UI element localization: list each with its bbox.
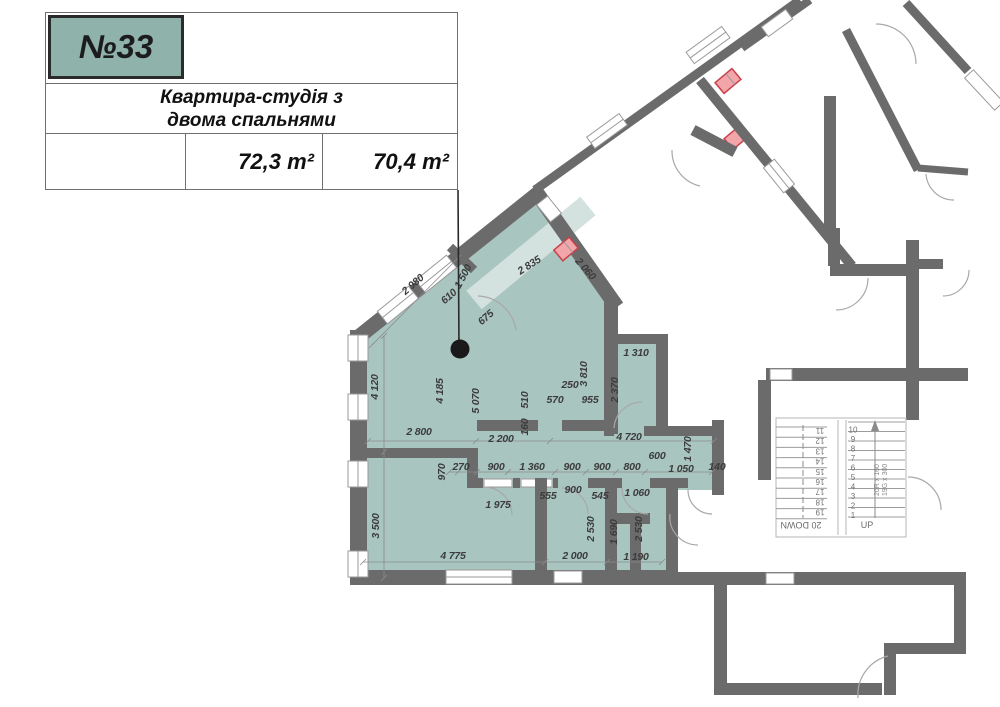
dimension-label: 2 800 <box>405 426 432 438</box>
vent-icon <box>715 69 741 94</box>
dimension-label: 1 470 <box>682 436 694 462</box>
dimension-label: 1 310 <box>623 347 649 359</box>
apartment-title-line2: двома спальнями <box>167 109 336 132</box>
vestibule <box>678 490 712 570</box>
dimension-label: 160 <box>519 418 531 435</box>
area-cell-empty <box>46 134 186 189</box>
dimension-label: 2 000 <box>561 550 588 562</box>
dimension-label: 800 <box>624 461 641 473</box>
stair-step-number: 9 <box>851 435 856 444</box>
dimension-label: 2 200 <box>487 433 514 445</box>
stair-up-label: UP <box>861 520 874 530</box>
stair-step-number: 7 <box>851 454 856 463</box>
dimension-label: 140 <box>709 461 726 473</box>
dimension-label: 600 <box>649 450 666 462</box>
apartment-number: №33 <box>79 28 154 66</box>
dimension-label: 510 <box>519 391 531 408</box>
stair-step-number: 6 <box>851 464 856 473</box>
area-cell-reduced: 70,4 m² <box>323 134 457 189</box>
dimension-label: 555 <box>540 490 557 502</box>
stair-step-number: 11 <box>815 426 824 435</box>
dimension-label: 970 <box>436 463 448 480</box>
apartment-title-line1: Квартира-студія з <box>160 86 343 109</box>
dimension-label: 900 <box>564 461 581 473</box>
dimension-label: 2 530 <box>633 516 645 543</box>
area-cell-total: 72,3 m² <box>186 134 323 189</box>
apartment-title: Квартира-студія з двома спальнями <box>46 84 457 134</box>
stairwell: 12345678910111213141516171819 UP 20 DOWN… <box>776 418 906 537</box>
dimension-label: 1 690 <box>608 519 620 545</box>
stair-step-number: 10 <box>849 426 858 435</box>
stair-step-number: 4 <box>851 483 856 492</box>
dimension-label: 900 <box>594 461 611 473</box>
stair-step-number: 13 <box>815 446 824 455</box>
dimension-label: 5 070 <box>470 388 482 414</box>
stair-step-number: 15 <box>815 467 824 476</box>
stair-step-number: 14 <box>815 457 824 466</box>
stair-step-number: 1 <box>851 511 856 520</box>
dimension-label: 1 360 <box>519 461 545 473</box>
stair-down-label: 20 DOWN <box>780 520 821 530</box>
stair-step-number: 5 <box>851 473 856 482</box>
stair-step-number: 3 <box>851 492 856 501</box>
dimension-label: 545 <box>592 490 609 502</box>
stair-step-number: 18 <box>815 497 824 506</box>
dimension-label: 2 530 <box>585 516 597 543</box>
reduced-area-value: 70,4 m² <box>373 149 449 175</box>
dimension-label: 900 <box>488 461 505 473</box>
dimension-label: 1 060 <box>624 487 650 499</box>
dimension-label: 4 775 <box>439 550 466 562</box>
dimension-label: 900 <box>565 484 582 496</box>
stair-step-number: 12 <box>815 436 824 445</box>
title-block-areas: 72,3 m² 70,4 m² <box>46 134 457 189</box>
stair-step-number: 16 <box>815 477 824 486</box>
stair-step-number: 19 <box>815 508 824 517</box>
dimension-label: 1 190 <box>623 551 649 563</box>
callout-dot <box>451 340 470 359</box>
stair-step-number: 8 <box>851 445 856 454</box>
floor-plan-page: 12345678910111213141516171819 UP 20 DOWN… <box>0 0 1000 707</box>
dimension-label: 4 185 <box>434 378 446 405</box>
dimension-label: 1 975 <box>485 499 511 511</box>
stair-going-note: 19G x 300 <box>882 464 889 496</box>
dimension-label: 4 720 <box>615 431 642 443</box>
stair-step-number: 17 <box>815 487 824 496</box>
title-block-row-number: №33 <box>46 13 457 84</box>
dimension-label: 570 <box>547 394 564 406</box>
dimension-label: 270 <box>452 461 470 473</box>
dimension-label: 2 370 <box>609 377 621 404</box>
title-block: №33 Квартира-студія з двома спальнями 72… <box>45 12 458 190</box>
dimension-label: 1 050 <box>668 463 694 475</box>
stair-riser-note: 20R x 160 <box>874 464 881 496</box>
apartment-number-box: №33 <box>48 15 184 79</box>
dimension-label: 250 <box>561 379 579 391</box>
total-area-value: 72,3 m² <box>238 149 314 175</box>
dimension-label: 3 810 <box>578 361 590 387</box>
dimension-label: 955 <box>582 394 599 406</box>
dimension-label: 3 500 <box>370 513 382 539</box>
stair-step-number: 2 <box>851 502 856 511</box>
dimension-label: 4 120 <box>369 374 381 401</box>
